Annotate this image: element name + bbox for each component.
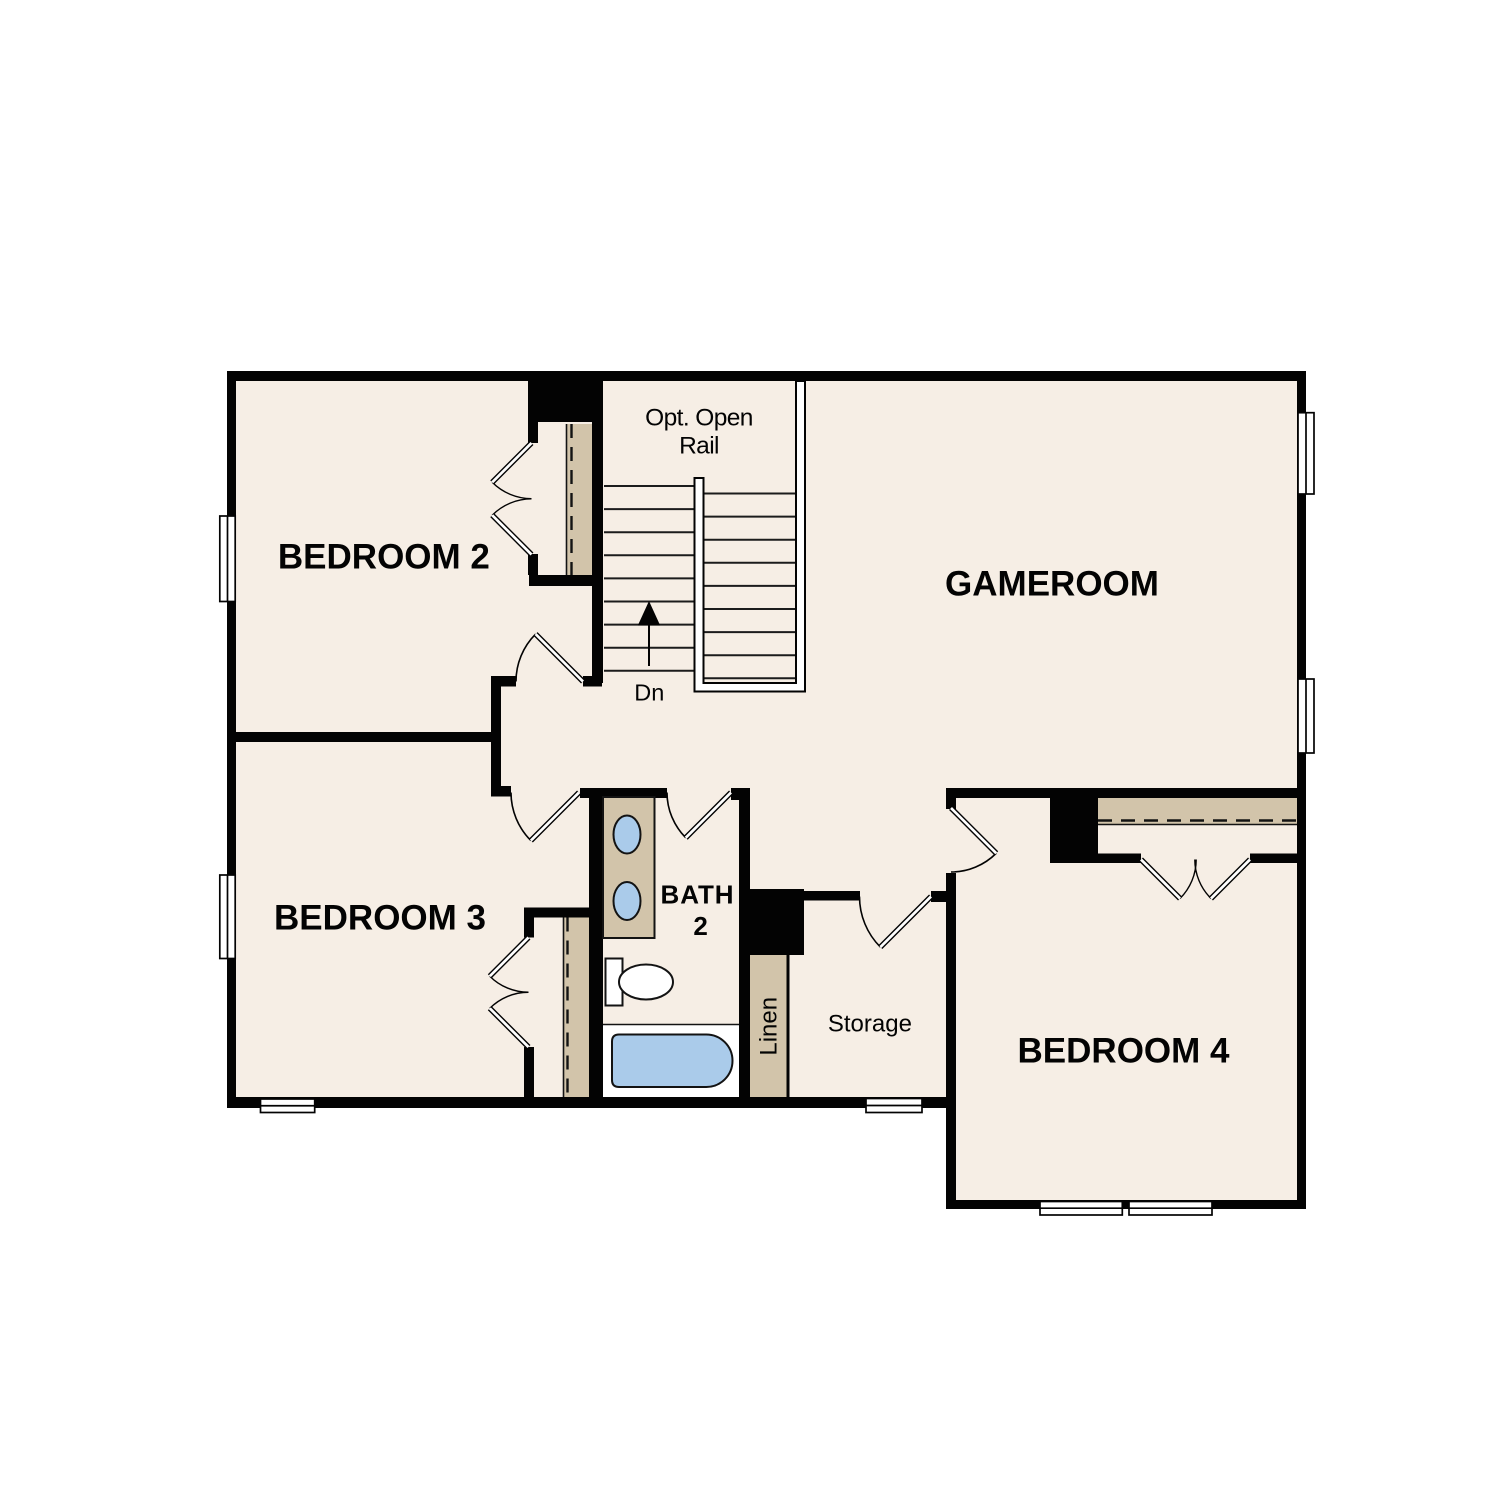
svg-text:BEDROOM 4: BEDROOM 4 bbox=[1018, 1032, 1231, 1071]
svg-text:Rail: Rail bbox=[679, 433, 719, 460]
svg-text:Dn: Dn bbox=[634, 680, 664, 706]
svg-text:GAMEROOM: GAMEROOM bbox=[945, 565, 1159, 604]
svg-text:2: 2 bbox=[693, 911, 708, 941]
svg-text:Linen: Linen bbox=[756, 997, 783, 1056]
svg-text:BEDROOM 2: BEDROOM 2 bbox=[278, 537, 490, 576]
svg-text:Opt. Open: Opt. Open bbox=[645, 405, 753, 432]
svg-text:BEDROOM 3: BEDROOM 3 bbox=[274, 899, 486, 938]
svg-text:BATH: BATH bbox=[661, 880, 735, 910]
svg-text:Storage: Storage bbox=[828, 1011, 912, 1038]
